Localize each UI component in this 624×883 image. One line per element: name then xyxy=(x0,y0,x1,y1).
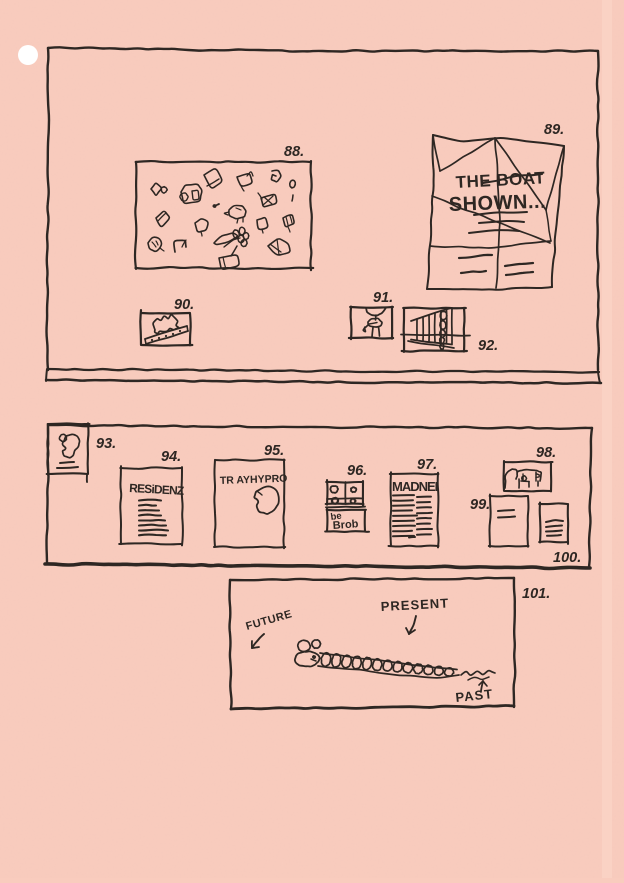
svg-text:93.: 93. xyxy=(96,436,116,452)
svg-text:88.: 88. xyxy=(284,144,304,160)
svg-text:97.: 97. xyxy=(417,457,437,473)
svg-text:98.: 98. xyxy=(536,445,556,461)
svg-text:90.: 90. xyxy=(174,297,194,313)
svg-text:Brob: Brob xyxy=(332,518,359,532)
svg-text:TR AYHYPRO: TR AYHYPRO xyxy=(220,473,288,487)
svg-text:95.: 95. xyxy=(264,443,284,459)
svg-text:91.: 91. xyxy=(373,290,393,306)
svg-text:99.: 99. xyxy=(470,497,490,513)
svg-text:RESiDENZ: RESiDENZ xyxy=(129,481,184,498)
svg-text:96.: 96. xyxy=(347,463,367,479)
svg-text:89.: 89. xyxy=(544,122,564,138)
svg-text:92.: 92. xyxy=(478,338,498,354)
svg-text:101.: 101. xyxy=(522,586,550,602)
svg-text:100.: 100. xyxy=(553,550,581,566)
svg-text:94.: 94. xyxy=(161,449,181,465)
svg-text:MADNEI: MADNEI xyxy=(392,479,438,494)
